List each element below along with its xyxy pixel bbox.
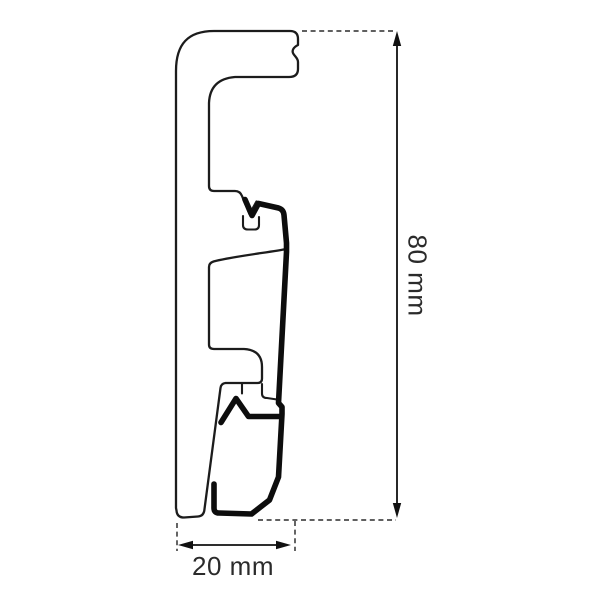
width-dimension-label: 20 mm	[182, 551, 284, 582]
technical-drawing-canvas: 80 mm 20 mm	[0, 0, 600, 600]
height-arrow-up-icon	[393, 31, 401, 46]
height-dimension-label: 80 mm	[402, 225, 433, 327]
height-arrow-down-icon	[393, 503, 401, 518]
clip-rail-middle-barb	[221, 399, 281, 423]
profile-drawing-svg	[0, 0, 600, 600]
width-arrow-left-icon	[178, 541, 193, 549]
width-arrow-right-icon	[276, 541, 291, 549]
lower-hook-slot-detail	[242, 384, 277, 400]
